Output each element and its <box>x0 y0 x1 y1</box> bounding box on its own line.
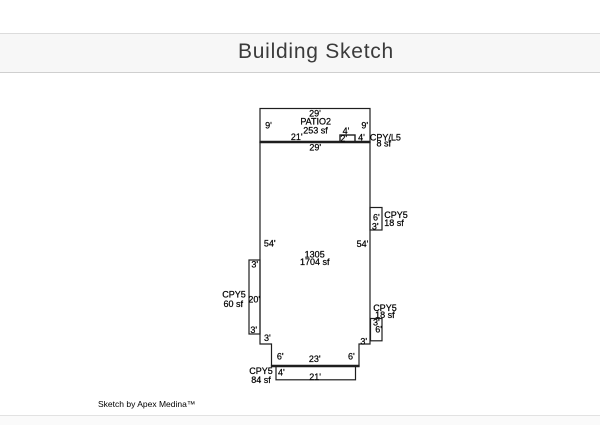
svg-text:21': 21' <box>291 132 303 142</box>
svg-text:4': 4' <box>278 368 285 378</box>
svg-text:54': 54' <box>357 239 369 249</box>
svg-text:3': 3' <box>372 222 379 232</box>
svg-text:3': 3' <box>264 333 271 343</box>
svg-text:21': 21' <box>309 372 321 382</box>
svg-text:20': 20' <box>248 295 260 305</box>
svg-text:54': 54' <box>264 238 276 248</box>
svg-text:3': 3' <box>360 336 367 346</box>
svg-text:18 sf: 18 sf <box>384 218 404 228</box>
svg-text:3': 3' <box>251 260 258 270</box>
svg-text:23': 23' <box>309 354 321 364</box>
svg-text:84 sf: 84 sf <box>251 375 271 385</box>
svg-text:4': 4' <box>358 133 365 143</box>
svg-text:253 sf: 253 sf <box>303 125 328 135</box>
svg-text:9': 9' <box>361 121 368 131</box>
svg-text:6': 6' <box>277 352 284 362</box>
svg-text:1704 sf: 1704 sf <box>300 257 330 267</box>
svg-text:6': 6' <box>375 325 382 335</box>
svg-text:60 sf: 60 sf <box>224 299 244 309</box>
svg-text:8 sf: 8 sf <box>377 139 392 149</box>
svg-text:2': 2' <box>340 134 347 144</box>
svg-text:9': 9' <box>265 121 272 131</box>
svg-text:29': 29' <box>309 142 321 152</box>
svg-text:3': 3' <box>250 325 257 335</box>
svg-text:6': 6' <box>348 352 355 362</box>
